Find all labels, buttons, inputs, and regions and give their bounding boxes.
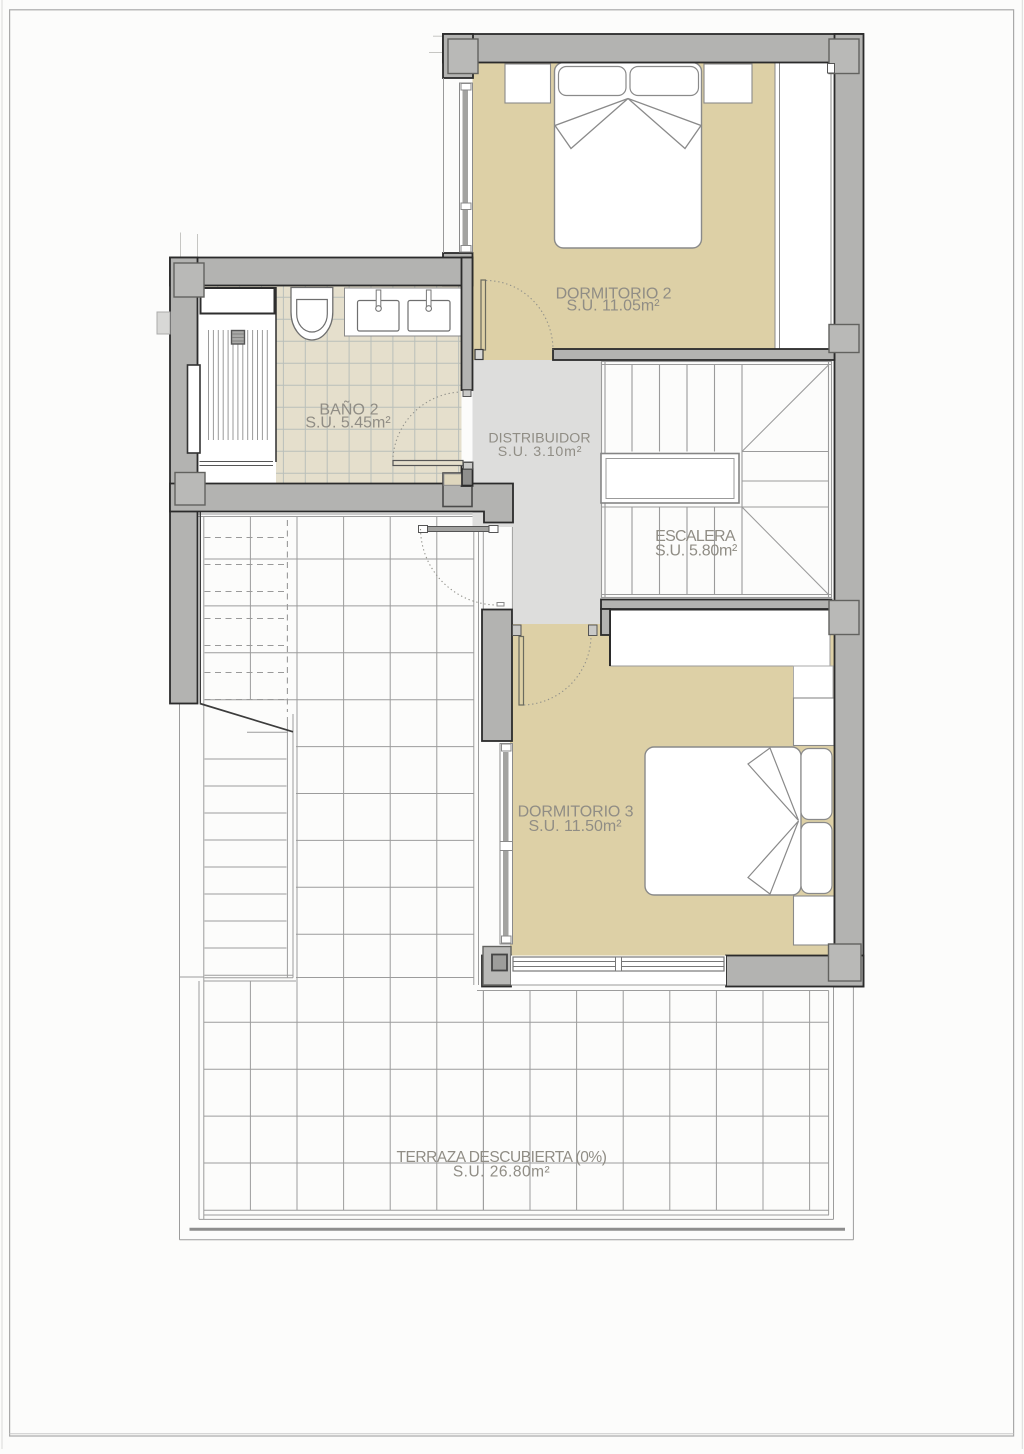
svg-text:S.U. 3.10m²: S.U. 3.10m² [498, 444, 583, 460]
svg-text:S.U. 26.80m²: S.U. 26.80m² [453, 1164, 550, 1181]
svg-text:S.U. 5.80m²: S.U. 5.80m² [655, 543, 738, 560]
svg-text:S.U. 11.05m²: S.U. 11.05m² [566, 298, 660, 315]
svg-text:S.U. 11.50m²: S.U. 11.50m² [528, 818, 622, 835]
svg-text:S.U. 5.45m²: S.U. 5.45m² [305, 415, 391, 432]
